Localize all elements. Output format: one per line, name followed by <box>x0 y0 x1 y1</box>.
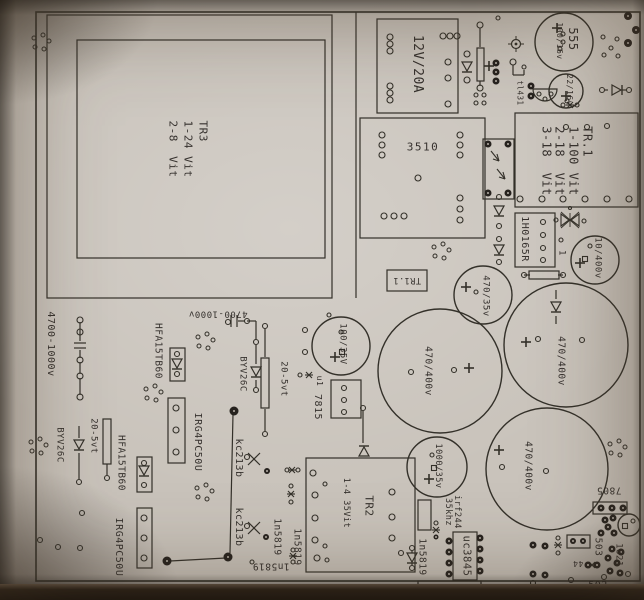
diode-icon <box>494 206 504 216</box>
to92-outline <box>533 89 557 101</box>
pad <box>401 213 407 219</box>
label-hfa15tb60-a: HFA15TB60 <box>152 323 163 379</box>
filled-pad-hole <box>448 562 450 564</box>
pad <box>616 54 620 58</box>
pcb-artwork <box>0 0 644 600</box>
cluster-pad <box>205 332 209 336</box>
pad <box>477 22 483 28</box>
label-byv26c-a: BYV26C <box>237 356 248 392</box>
pad <box>556 536 560 540</box>
filled-pad-hole <box>227 556 229 558</box>
pad <box>303 350 308 355</box>
label-cap-555: 555 <box>566 27 580 50</box>
pad <box>500 465 505 470</box>
filled-pad-hole <box>612 517 614 519</box>
pad <box>510 59 516 65</box>
filled-pad-hole <box>495 71 497 73</box>
label-cap-470-35v: 470/35v <box>480 275 491 316</box>
cluster-pad <box>441 242 445 246</box>
cluster-pad <box>447 248 451 252</box>
pad <box>474 101 478 105</box>
pad <box>560 196 566 202</box>
kc213b-zener-icon <box>248 453 260 465</box>
pad <box>457 217 463 223</box>
filled-pad-hole <box>622 507 624 509</box>
polarity-plus-mark <box>461 282 471 292</box>
cap-470-400v-a-outline <box>378 309 502 433</box>
pad <box>434 521 438 525</box>
pad <box>379 132 385 138</box>
pad <box>381 213 387 219</box>
filled-pad-hole <box>600 507 602 509</box>
filled-pad-hole <box>166 560 168 562</box>
pad <box>325 558 329 562</box>
label-tr3-winding: TR3 1-24 Vit 2-8 Vit <box>165 121 210 178</box>
pad <box>387 83 393 89</box>
filled-pad-hole <box>495 62 497 64</box>
filled-pad-hole <box>635 29 637 31</box>
pad <box>541 220 546 225</box>
pad <box>387 97 393 103</box>
diode-icon <box>74 440 84 450</box>
filled-pad-hole <box>487 143 489 145</box>
pad <box>289 500 293 504</box>
cluster-pad <box>197 344 201 348</box>
resistor-icon <box>103 419 111 464</box>
pad <box>312 537 318 543</box>
crosshair-pad-icon <box>508 36 524 52</box>
label-tr1-1: TR1.1 <box>393 275 421 285</box>
pad <box>56 545 61 550</box>
label-pin-1: 1 <box>556 250 567 256</box>
component-outlines-group <box>36 12 640 595</box>
label-cap-22-16v: 22/16v <box>564 74 574 106</box>
filled-pad-hole <box>435 536 437 538</box>
cluster-pad <box>39 451 43 455</box>
opto-arrow-icon <box>497 169 505 179</box>
pad <box>387 90 393 96</box>
cluster-pad <box>38 437 42 441</box>
pad <box>604 196 610 202</box>
cluster-pad <box>145 396 149 400</box>
pad <box>342 410 347 415</box>
label-tr2: TR2 <box>362 495 375 516</box>
label-ic-uc3845: uc3845 <box>460 536 473 577</box>
label-u1: u1 <box>314 376 324 387</box>
cluster-pad <box>204 483 208 487</box>
resistor-icon <box>261 358 269 408</box>
resistor-icon <box>529 271 559 279</box>
polarity-plus-mark <box>464 363 474 373</box>
filled-pad-hole <box>532 544 534 546</box>
label-cap-1000-35v: 1000/35v <box>433 444 443 489</box>
filled-pad-hole <box>582 540 584 542</box>
cluster-pad <box>144 387 148 391</box>
pad <box>496 16 500 20</box>
filled-pad-hole <box>507 143 509 145</box>
label-1n5819-d: 1n5819 <box>416 538 427 575</box>
cluster-pad <box>205 497 209 501</box>
pad <box>387 34 393 40</box>
label-cap-4700-1000v-b: 4700-1000v <box>188 308 247 319</box>
filled-pad-hole <box>479 537 481 539</box>
label-transformer-12v20a: 12V/20A <box>409 35 425 93</box>
pad <box>464 77 470 83</box>
label-1n5819-c: 1n5819 <box>252 560 289 571</box>
cluster-pad <box>30 449 34 453</box>
pad <box>541 258 546 263</box>
label-kc213b-b: kc213b <box>232 507 244 546</box>
filled-pad-hole <box>448 540 450 542</box>
polarity-plus-mark <box>484 61 494 71</box>
pad <box>474 93 478 97</box>
cluster-pad <box>623 445 627 449</box>
pad <box>457 132 463 138</box>
pad <box>387 48 393 54</box>
pad <box>415 175 421 181</box>
pad <box>601 35 605 39</box>
resistor-icon <box>477 48 484 81</box>
pad <box>399 551 404 556</box>
pad <box>342 386 347 391</box>
small-diode-star-icon <box>305 372 313 378</box>
filled-pad-hole <box>233 410 235 412</box>
polarity-plus-mark <box>575 258 585 268</box>
label-tr2-winding: 1-4 35Vit <box>341 478 351 529</box>
pad <box>464 51 470 57</box>
pad <box>410 546 415 551</box>
pad <box>173 427 179 433</box>
pad <box>175 352 180 357</box>
pad <box>323 544 327 548</box>
polarity-plus-mark <box>494 445 504 455</box>
filled-pad-hole <box>627 15 629 17</box>
pad <box>627 88 632 93</box>
label-20-5vt-a: 20-5vt <box>278 361 289 397</box>
small-diode-star-icon <box>554 542 562 548</box>
paper-edge-shadow <box>0 574 644 584</box>
label-hfa15tb60-b: HFA15TB60 <box>115 435 126 491</box>
pad <box>105 476 110 481</box>
label-tr1-winding: TR.1 1-100 Vit 2-18 Vit 3-18 Vit <box>538 126 593 196</box>
filled-pad-hole <box>530 95 532 97</box>
pad <box>497 260 502 265</box>
pad <box>77 480 82 485</box>
cluster-pad <box>210 489 214 493</box>
photo-of-pcb-drawing: TR3 1-24 Vit 2-8 Vit12V/20A100/16v55522/… <box>0 0 644 600</box>
cluster-pad <box>618 453 622 457</box>
filled-pad-hole <box>479 570 481 572</box>
pad <box>173 449 179 455</box>
pad <box>389 514 395 520</box>
pad <box>452 368 457 373</box>
pad <box>327 313 331 317</box>
pad <box>445 59 451 65</box>
cluster-pad <box>206 346 210 350</box>
filled-pad-hole <box>613 532 615 534</box>
diode-icon <box>359 446 369 456</box>
pad <box>254 340 259 345</box>
cluster-pad <box>211 338 215 342</box>
cluster-pad <box>41 33 45 37</box>
trace-line <box>170 558 226 561</box>
cluster-pad <box>196 335 200 339</box>
label-cap-100-35v: 100/35V <box>337 323 348 364</box>
filled-pad-hole <box>627 42 629 44</box>
filled-pad-hole <box>604 519 606 521</box>
square-pad <box>623 524 628 529</box>
small-diode-star-icon <box>432 527 440 533</box>
label-irf244: irf244 <box>452 495 462 529</box>
pad <box>263 432 268 437</box>
filled-pad-hole <box>530 85 532 87</box>
pad <box>289 484 293 488</box>
pad <box>226 320 231 325</box>
filled-pad-hole <box>448 551 450 553</box>
diode-icon <box>551 302 561 312</box>
filled-pad-hole <box>611 507 613 509</box>
diode-icon <box>139 466 149 476</box>
cluster-pad <box>42 47 46 51</box>
label-tl431: tl431 <box>516 80 525 105</box>
pad <box>457 195 463 201</box>
pad <box>142 483 147 488</box>
filled-pad-hole <box>495 80 497 82</box>
pad <box>389 489 395 495</box>
filled-pad-hole <box>609 570 611 572</box>
pad <box>569 207 572 210</box>
filled-pad-hole <box>572 540 574 542</box>
label-reg-7815: 7815 <box>311 394 323 420</box>
pad <box>609 46 613 50</box>
pad <box>342 398 347 403</box>
pad <box>536 337 541 342</box>
pad <box>445 75 451 81</box>
pad <box>312 492 318 498</box>
pad <box>312 515 318 521</box>
pad <box>626 196 632 202</box>
pad <box>497 224 502 229</box>
pad <box>454 33 460 39</box>
filled-pad-hole <box>607 557 609 559</box>
filled-pad-hole <box>479 548 481 550</box>
cap-100-16v-outline <box>535 13 593 71</box>
connector-outline <box>418 500 431 530</box>
label-cap-100-16v: 100/16v <box>554 22 564 59</box>
pad <box>541 246 546 251</box>
pad <box>142 461 147 466</box>
cluster-pad <box>196 495 200 499</box>
cluster-pad <box>442 256 446 260</box>
to220-circle-outline <box>618 514 640 536</box>
pad <box>457 206 463 212</box>
pad <box>389 535 395 541</box>
pad <box>522 65 526 69</box>
square-pad <box>583 257 588 262</box>
cluster-pad <box>159 390 163 394</box>
pad <box>314 555 320 561</box>
filled-pad-hole <box>479 559 481 561</box>
label-cap-470-400v-b: 470/400v <box>555 336 566 386</box>
label-1821: 1821 <box>613 543 624 567</box>
filled-pad-hole <box>544 545 546 547</box>
filled-pad-hole <box>587 564 589 566</box>
label-cap-470-400v-a: 470/400v <box>422 346 433 396</box>
pad <box>615 37 619 41</box>
pad <box>303 328 308 333</box>
pad <box>78 546 83 551</box>
filled-pad-hole <box>266 470 268 472</box>
pad <box>497 237 502 242</box>
cluster-pad <box>154 398 158 402</box>
label-ic-1h0165r: 1H0165R <box>518 216 530 262</box>
pad <box>141 535 147 541</box>
pad <box>556 551 560 555</box>
irg4pc50u-b-outline <box>137 508 152 568</box>
label-44: 44 <box>573 558 584 568</box>
pad <box>298 373 302 377</box>
paper-sheet: TR3 1-24 Vit 2-8 Vit12V/20A100/16v55522/… <box>0 0 644 600</box>
pad <box>310 470 316 476</box>
diode-icon <box>251 367 261 377</box>
label-kc213b-a: kc213b <box>232 438 244 477</box>
pad <box>141 515 147 521</box>
pad <box>323 482 327 486</box>
pad <box>80 511 85 516</box>
filled-pad-hole <box>265 536 267 538</box>
kc213b-zener-icon <box>248 522 260 534</box>
pad <box>447 33 453 39</box>
pad <box>600 88 605 93</box>
pad <box>482 93 486 97</box>
pad <box>517 196 523 202</box>
pad <box>379 142 385 148</box>
pad <box>173 405 179 411</box>
pad <box>245 455 250 460</box>
cluster-pad <box>432 245 436 249</box>
pad <box>387 41 393 47</box>
board-outline <box>36 12 640 581</box>
tvs-diode-icon <box>561 212 579 228</box>
polarity-plus-mark <box>521 337 531 347</box>
pad <box>391 213 397 219</box>
pad <box>544 469 549 474</box>
filled-pad-hole <box>596 564 598 566</box>
irg4pc50u-a-outline <box>168 398 185 463</box>
cluster-pad <box>433 254 437 258</box>
pad <box>559 238 563 242</box>
filled-pad-hole <box>607 526 609 528</box>
label-reg-7805: 7805 <box>597 484 622 495</box>
cluster-pad <box>608 442 612 446</box>
pad <box>254 388 259 393</box>
label-cap-470-400v-c: 470/400v <box>522 441 533 491</box>
filled-pad-hole <box>600 532 602 534</box>
pad <box>38 538 43 543</box>
pad <box>457 152 463 158</box>
pad <box>605 124 610 129</box>
diode-icon <box>462 62 472 72</box>
small-diode-star-icon <box>287 491 295 497</box>
cluster-pad <box>195 486 199 490</box>
cluster-pad <box>609 451 613 455</box>
label-1n5819-b: 1n5819 <box>291 528 302 565</box>
filled-pad-hole <box>487 192 489 194</box>
cluster-pad <box>617 439 621 443</box>
pad <box>482 101 486 105</box>
pad <box>580 338 585 343</box>
pad <box>602 53 606 57</box>
pad <box>582 219 586 223</box>
diode-icon <box>494 245 504 255</box>
label-cap-4700-1000v-a: 4700-1000v <box>44 311 56 376</box>
pad <box>474 290 478 294</box>
pad <box>440 33 446 39</box>
pad <box>537 92 541 96</box>
diode-icon <box>612 85 622 95</box>
pad <box>445 101 451 107</box>
filled-pad-hole <box>507 192 509 194</box>
pad <box>245 524 250 529</box>
pad <box>263 324 268 329</box>
pad <box>141 555 147 561</box>
cluster-pad <box>29 440 33 444</box>
pad <box>582 196 588 202</box>
label-20-5vt-b: 20-5vt <box>88 418 99 454</box>
pad <box>379 152 385 158</box>
label-503: 503 <box>592 538 603 557</box>
pad <box>631 519 635 523</box>
pad <box>541 233 546 238</box>
opto-arrow-icon <box>491 151 499 161</box>
diode-icon <box>172 359 182 369</box>
pad <box>296 468 300 472</box>
label-byv26c-b: BYV26C <box>54 427 65 463</box>
label-1n5819-a: 1n5819 <box>271 518 282 555</box>
label-irg4pc50u-b: IRG4PC50U <box>112 518 124 577</box>
table-surface-band <box>0 584 644 600</box>
pad <box>175 372 180 377</box>
label-cap-10-400v: 10/400v <box>592 237 603 278</box>
pad <box>457 142 463 148</box>
pad <box>410 566 415 571</box>
label-irg4pc50u-a: IRG4PC50U <box>191 413 203 472</box>
cluster-pad <box>153 384 157 388</box>
pad <box>409 370 414 375</box>
pad <box>539 196 545 202</box>
cluster-pad <box>44 443 48 447</box>
label-bridge-3510: 3510 <box>407 140 440 153</box>
